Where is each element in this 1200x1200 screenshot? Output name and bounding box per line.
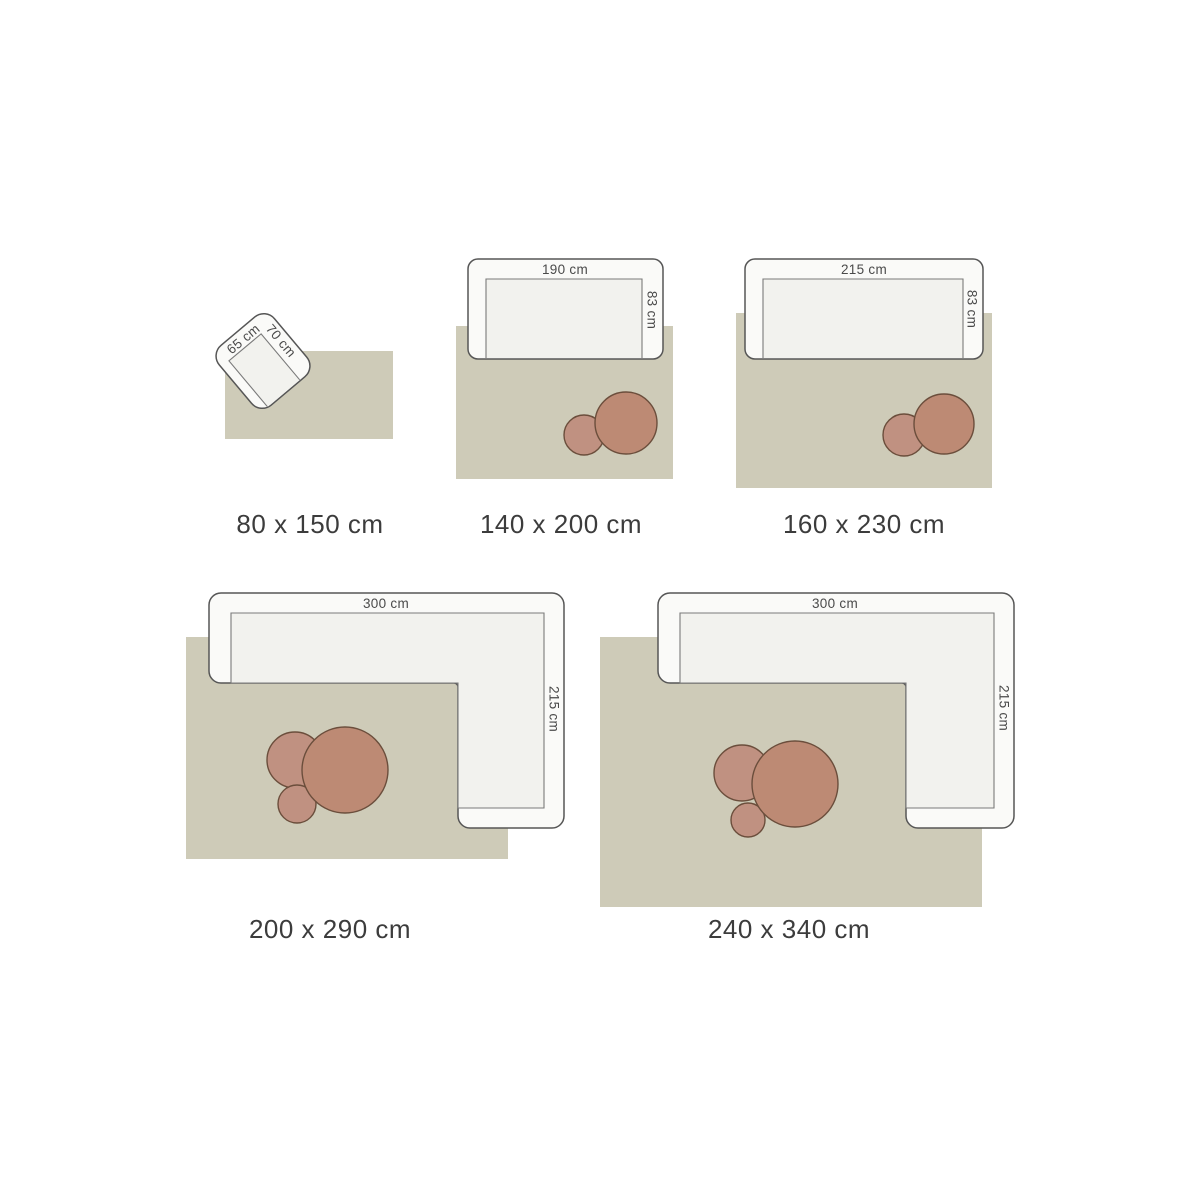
panel-80x150: 65 cm 70 cm 80 x 150 cm [210, 308, 393, 539]
caption-140x200: 140 x 200 cm [480, 509, 642, 539]
size-guide-canvas: 65 cm 70 cm 80 x 150 cm 190 cm 83 cm 140… [0, 0, 1200, 1200]
sofa-width-label: 215 cm [841, 262, 887, 277]
coffee-table-large [752, 741, 838, 827]
sofa-seat [486, 279, 642, 358]
sofa-depth-label: 83 cm [964, 290, 979, 328]
caption-200x290: 200 x 290 cm [249, 914, 411, 944]
rug-size-guide: 65 cm 70 cm 80 x 150 cm 190 cm 83 cm 140… [0, 0, 1200, 1200]
coffee-table-large [914, 394, 974, 454]
caption-80x150: 80 x 150 cm [236, 509, 383, 539]
panel-140x200: 190 cm 83 cm 140 x 200 cm [456, 259, 673, 539]
panel-240x340: 300 cm 215 cm 240 x 340 cm [600, 593, 1014, 944]
panel-200x290: 300 cm 215 cm 200 x 290 cm [186, 593, 564, 944]
sofa-depth-label: 83 cm [644, 291, 659, 329]
corner-sofa-depth-label: 215 cm [546, 686, 561, 732]
corner-sofa-depth-label: 215 cm [996, 685, 1011, 731]
panel-160x230: 215 cm 83 cm 160 x 230 cm [736, 259, 992, 539]
caption-240x340: 240 x 340 cm [708, 914, 870, 944]
sofa-seat [763, 279, 963, 358]
corner-sofa-width-label: 300 cm [812, 596, 858, 611]
coffee-table-large [302, 727, 388, 813]
sofa-width-label: 190 cm [542, 262, 588, 277]
coffee-table-large [595, 392, 657, 454]
corner-sofa-width-label: 300 cm [363, 596, 409, 611]
caption-160x230: 160 x 230 cm [783, 509, 945, 539]
